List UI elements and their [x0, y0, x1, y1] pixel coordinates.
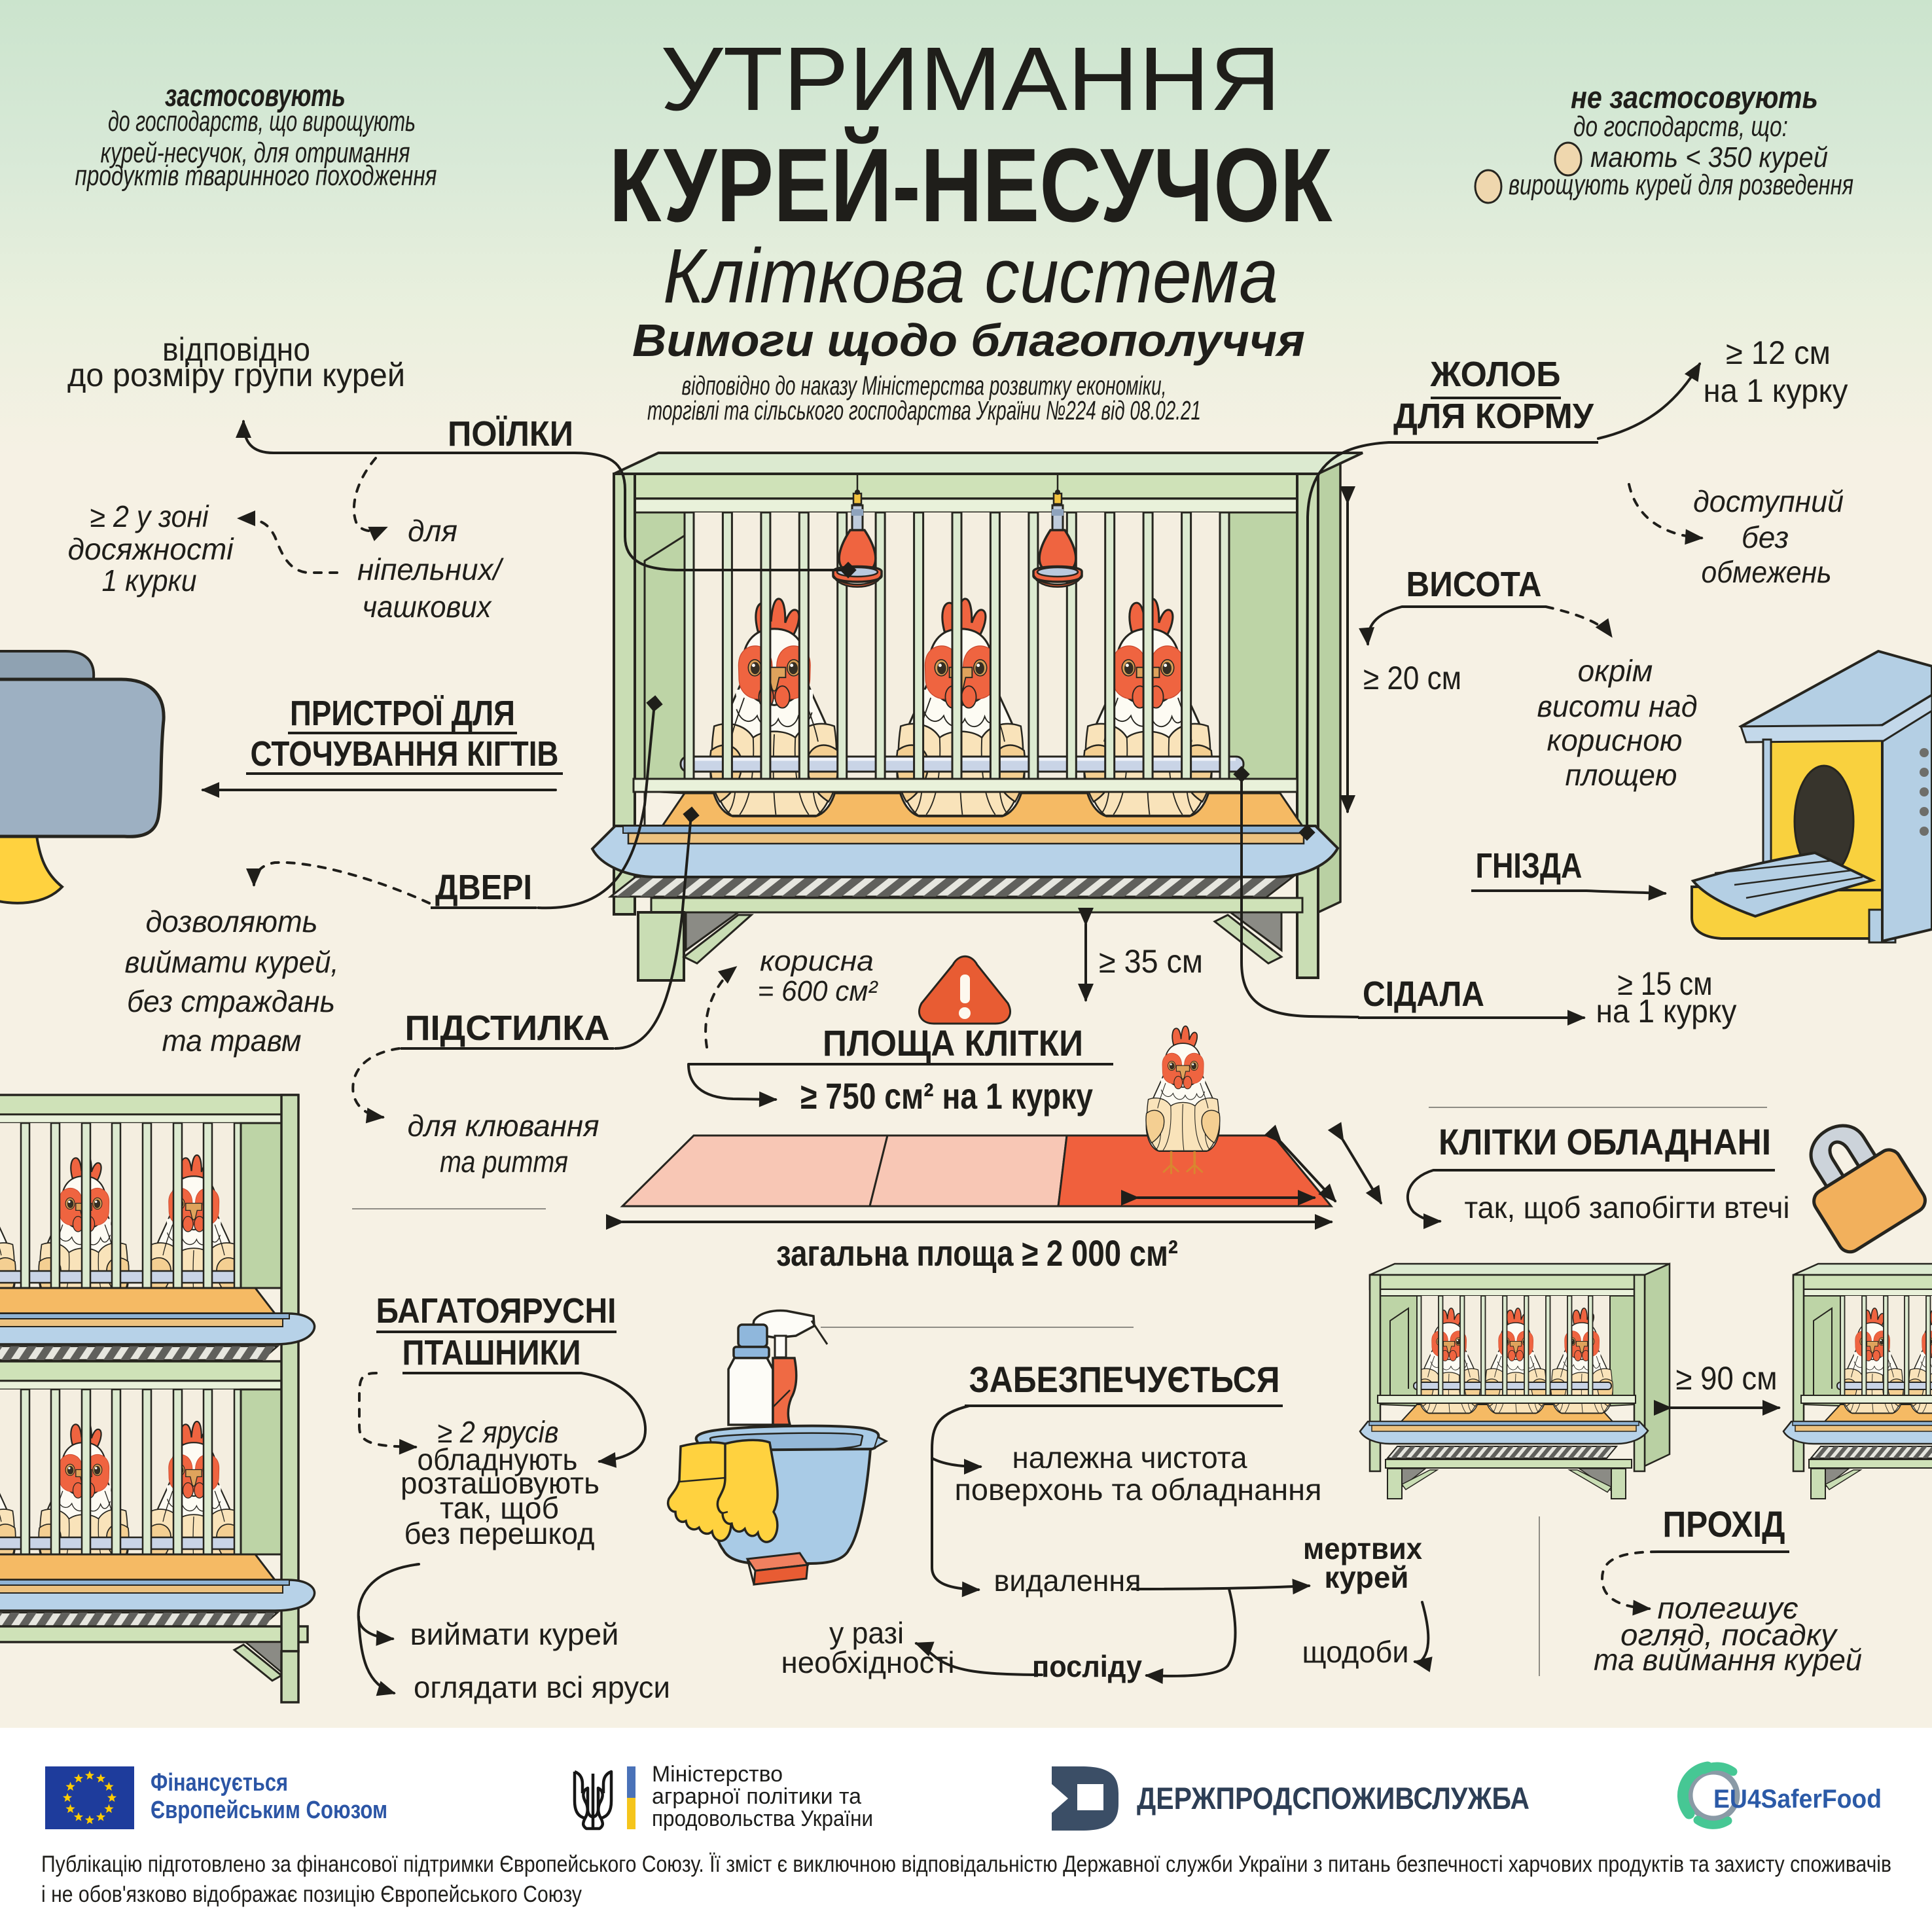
- svg-text:до господарств, що:: до господарств, що:: [1573, 111, 1788, 143]
- svg-text:та виймання курей: та виймання курей: [1594, 1643, 1862, 1677]
- svg-text:БАГАТОЯРУСНІ: БАГАТОЯРУСНІ: [376, 1291, 617, 1331]
- svg-text:ПТАШНИКИ: ПТАШНИКИ: [402, 1333, 581, 1372]
- svg-text:ПРИСТРОЇ ДЛЯ: ПРИСТРОЇ ДЛЯ: [290, 694, 515, 733]
- svg-text:видалення: видалення: [994, 1564, 1141, 1598]
- svg-text:курей: курей: [1325, 1560, 1409, 1594]
- svg-text:належна чистота: належна чистота: [1012, 1440, 1247, 1475]
- svg-text:Фінансується: Фінансується: [151, 1769, 288, 1797]
- svg-text:ПЛОЩА КЛІТКИ: ПЛОЩА КЛІТКИ: [823, 1022, 1083, 1064]
- svg-text:без страждань: без страждань: [127, 984, 335, 1018]
- svg-text:ЖОЛОБ: ЖОЛОБ: [1430, 355, 1561, 394]
- svg-text:КУРЕЙ-НЕСУЧОК: КУРЕЙ-НЕСУЧОК: [609, 126, 1333, 243]
- svg-text:ДВЕРІ: ДВЕРІ: [435, 868, 532, 907]
- svg-text:Публікацію підготовлено за фін: Публікацію підготовлено за фінансової пі…: [41, 1851, 1891, 1877]
- svg-text:обмежень: обмежень: [1702, 555, 1832, 589]
- svg-text:≥ 20 см: ≥ 20 см: [1363, 660, 1461, 696]
- svg-text:Європейським Союзом: Європейським Союзом: [151, 1797, 387, 1824]
- svg-text:щодоби: щодоби: [1302, 1635, 1409, 1669]
- svg-text:виймати курей,: виймати курей,: [125, 945, 339, 979]
- svg-text:ДЕРЖПРОДСПОЖИВСЛУЖБА: ДЕРЖПРОДСПОЖИВСЛУЖБА: [1137, 1781, 1529, 1816]
- svg-text:загальна площа ≥ 2 000 см²: загальна площа ≥ 2 000 см²: [776, 1232, 1178, 1274]
- svg-text:1 курки: 1 курки: [102, 563, 197, 598]
- svg-text:СІДАЛА: СІДАЛА: [1363, 975, 1484, 1014]
- svg-text:для: для: [408, 514, 457, 548]
- svg-text:Вимоги щодо благополуччя: Вимоги щодо благополуччя: [632, 315, 1305, 366]
- svg-text:до господарств, що вирощують: до господарств, що вирощують: [108, 105, 416, 137]
- svg-text:EU4SaferFood: EU4SaferFood: [1713, 1785, 1882, 1814]
- svg-text:ГНІЗДА: ГНІЗДА: [1476, 846, 1583, 885]
- svg-text:СТОЧУВАННЯ КІГТІВ: СТОЧУВАННЯ КІГТІВ: [251, 734, 559, 774]
- svg-text:Міністерство: Міністерство: [652, 1762, 783, 1787]
- svg-text:без: без: [1742, 520, 1789, 554]
- svg-text:на 1 курку: на 1 курку: [1596, 993, 1737, 1029]
- svg-text:= 600 см²: = 600 см²: [758, 975, 878, 1007]
- svg-text:площею: площею: [1565, 758, 1677, 792]
- svg-text:≥ 35 см: ≥ 35 см: [1099, 943, 1203, 980]
- svg-text:ВИСОТА: ВИСОТА: [1406, 565, 1542, 604]
- svg-text:і не обов'язково відображає по: і не обов'язково відображає позицію Євро…: [41, 1882, 582, 1907]
- svg-text:≥ 2 у зоні: ≥ 2 у зоні: [90, 499, 210, 533]
- svg-text:корисною: корисною: [1547, 723, 1683, 757]
- svg-text:так, щоб запобігти втечі: так, щоб запобігти втечі: [1465, 1190, 1790, 1225]
- svg-text:ПІДСТИЛКА: ПІДСТИЛКА: [405, 1009, 610, 1048]
- svg-text:продовольства України: продовольства України: [652, 1806, 873, 1831]
- svg-text:доступний: доступний: [1693, 484, 1844, 518]
- svg-text:оглядати всі яруси: оглядати всі яруси: [414, 1670, 670, 1704]
- svg-text:корисна: корисна: [760, 945, 874, 977]
- svg-text:≥ 750 см² на 1 курку: ≥ 750 см² на 1 курку: [800, 1075, 1093, 1117]
- svg-text:УТРИМАННЯ: УТРИМАННЯ: [660, 29, 1281, 130]
- svg-text:та риття: та риття: [440, 1145, 568, 1179]
- svg-text:≥ 90 см: ≥ 90 см: [1676, 1360, 1778, 1397]
- svg-text:виймати курей: виймати курей: [410, 1617, 619, 1651]
- svg-text:ДЛЯ КОРМУ: ДЛЯ КОРМУ: [1393, 397, 1594, 436]
- svg-text:не застосовують: не застосовують: [1571, 80, 1818, 115]
- svg-text:та травм: та травм: [162, 1024, 302, 1058]
- svg-text:висоти над: висоти над: [1537, 689, 1698, 723]
- svg-text:без перешкод: без перешкод: [404, 1516, 595, 1550]
- svg-text:торгівлі та сільського господа: торгівлі та сільського господарства Укра…: [647, 395, 1201, 425]
- svg-text:необхідності: необхідності: [781, 1645, 955, 1679]
- svg-text:≥ 12 см: ≥ 12 см: [1726, 334, 1831, 371]
- svg-text:ЗАБЕЗПЕЧУЄТЬСЯ: ЗАБЕЗПЕЧУЄТЬСЯ: [969, 1359, 1280, 1400]
- svg-text:Кліткова система: Кліткова система: [663, 233, 1278, 319]
- svg-text:досяжності: досяжності: [68, 532, 235, 566]
- svg-text:ніпельних/: ніпельних/: [357, 552, 504, 586]
- svg-text:КЛІТКИ ОБЛАДНАНІ: КЛІТКИ ОБЛАДНАНІ: [1439, 1121, 1771, 1162]
- svg-text:поверхонь та обладнання: поверхонь та обладнання: [955, 1473, 1322, 1507]
- svg-text:на 1 курку: на 1 курку: [1704, 372, 1848, 409]
- svg-text:ПОЇЛКИ: ПОЇЛКИ: [448, 414, 573, 454]
- svg-text:посліду: посліду: [1032, 1649, 1142, 1683]
- svg-text:вирощують курей для розведення: вирощують курей для розведення: [1509, 169, 1853, 201]
- svg-text:чашкових: чашкових: [363, 590, 493, 624]
- svg-text:до розміру групи курей: до розміру групи курей: [67, 357, 405, 393]
- svg-text:дозволяють: дозволяють: [146, 904, 318, 939]
- svg-text:продуктів тваринного походженн: продуктів тваринного походження: [75, 160, 437, 192]
- svg-text:окрім: окрім: [1578, 654, 1653, 688]
- svg-text:для клювання: для клювання: [408, 1109, 599, 1143]
- svg-text:аграрної політики та: аграрної політики та: [652, 1784, 861, 1809]
- svg-text:ПРОХІД: ПРОХІД: [1663, 1503, 1785, 1545]
